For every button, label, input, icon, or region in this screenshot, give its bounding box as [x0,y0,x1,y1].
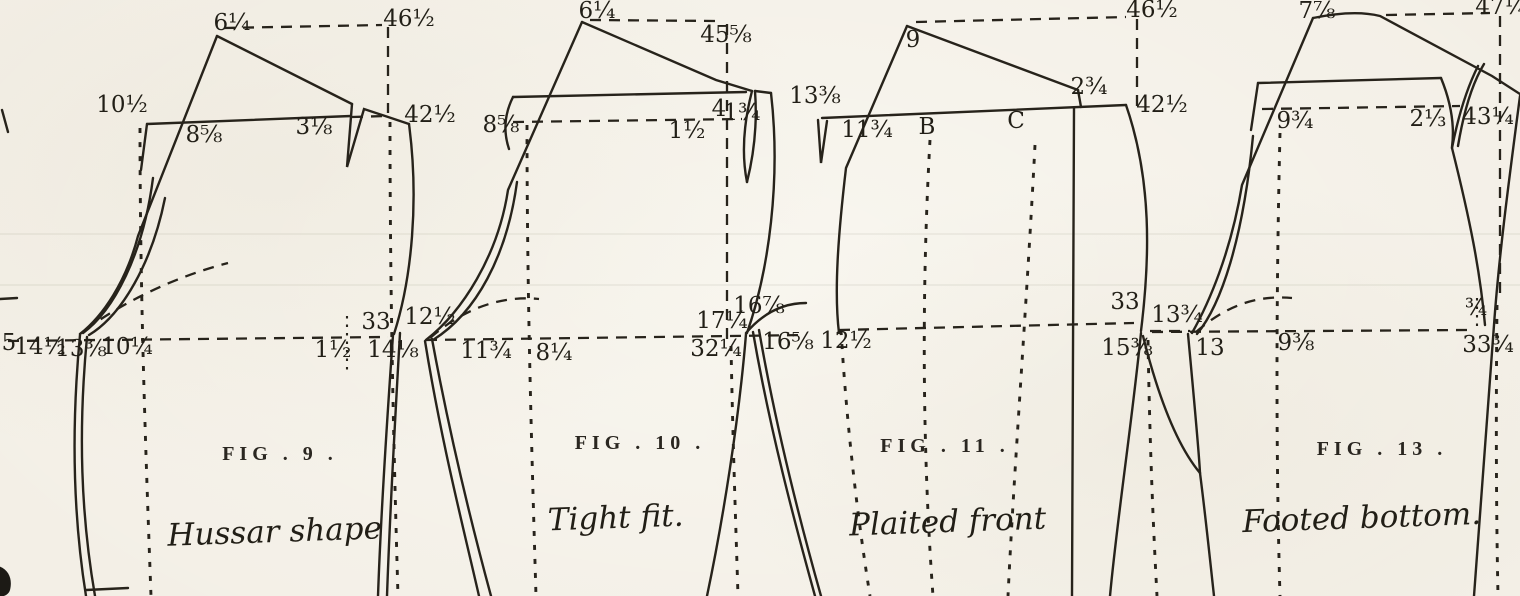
fig11-pleat-line [1072,108,1074,596]
measurement-label: 7⅞ [1299,0,1336,24]
edge-mark [2,110,8,132]
fig9-front-rise [80,36,217,334]
edge-mark [0,298,17,299]
fig11-top-seam [907,26,1078,90]
fig10-construction-dashes [426,20,806,340]
fig13-caption: Footed bottom. [1241,496,1482,540]
measurement-label: 10½ [96,92,148,118]
fig9-top-seam [217,36,352,104]
measurement-label: 43¼ [1462,104,1514,130]
measurement-label: 8¼ [536,340,573,366]
fig10-band-corner [755,91,771,93]
measurement-label: 2⅓ [1410,106,1447,132]
measurement-label: 13¾ [1151,302,1203,328]
point-letter-b: B [919,114,936,140]
measurement-label: 12½ [404,304,456,330]
measurement-label: 6¼ [579,0,616,24]
fig9-waist-dart [347,104,409,167]
measurement-label: 33¾ [1462,332,1514,358]
fig13-front-rise [1192,18,1313,333]
measurement-label: 46½ [383,6,435,32]
fig10-caption: Tight fit. [547,498,684,539]
measurement-label: 11¾ [460,338,512,364]
fig9-construction-dashes [8,25,388,341]
fig11-title: FIG . 11 . [880,435,1009,457]
measurement-label: 1½ [315,337,352,363]
figure-10: 6¼45⅝8⅝1½41¾12½11¾8¼17¼16⅞32¼16⅝ FIG . 1… [404,0,821,596]
fig11-front-rise [837,26,907,333]
measurement-label: 46½ [1126,0,1178,23]
fig13-top-seam [1313,13,1520,94]
measurement-label: 16⅞ [733,293,785,319]
fig10-leg-line [425,341,479,596]
measurement-label: ¾ [1465,295,1487,321]
measurement-label: 13 [1195,335,1224,361]
measurement-label: 42½ [1136,92,1188,118]
measurement-label: 8⅝ [483,112,520,138]
measurement-label: 32¼ [690,336,742,362]
fig10-title: FIG . 10 . [575,432,706,454]
fig9-caption: Hussar shape [166,510,383,554]
measurement-label: 9 [906,27,921,53]
fig9-waist-dash [352,116,386,117]
fig11-band-dart [818,120,827,163]
fig9-labels: 6¼46½10½8⅝3⅛42½514½13⅜10¼1½3314⅛ [2,6,456,363]
fig11-knee-dash [839,323,1134,330]
figure-13: 13¾137⅞47¼9¾2⅓43¼9⅜¾33¾ FIG . 13 . Foote… [1143,0,1520,596]
pattern-sheet: 6¼46½10½8⅝3⅛42½514½13⅜10¼1½3314⅛ FIG . 9… [0,0,1520,596]
measurement-label: 45⅝ [700,22,752,48]
fig10-crease [731,346,738,596]
measurement-label: 1½ [669,118,706,144]
fig11-crease [841,330,870,596]
measurement-label: 12½ [820,328,872,354]
ink-blot [0,565,11,596]
measurement-label: 9⅜ [1278,330,1315,356]
fig9-leg-line [378,335,393,596]
fig11-labels: 946½13⅜11¾BC2¾42½12½3315⅜ [789,0,1188,361]
fig9-leg-line [82,337,95,596]
measurement-label: 6¼ [214,10,251,36]
fig10-leg-line [707,334,746,596]
trouser-drafting-diagram: 6¼46½10½8⅝3⅛42½514½13⅜10¼1½3314⅛ FIG . 9… [0,0,1520,596]
fig10-leg-line [759,330,821,596]
fig13-title: FIG . 13 . [1317,438,1448,460]
measurement-label: 33 [361,309,390,335]
measurement-label: 8⅝ [186,122,223,148]
measurement-label: 47¼ [1475,0,1520,20]
fig9-band-end [141,124,147,170]
fig11-top-dash [916,17,1126,22]
fig13-leg-line [1200,473,1214,596]
measurement-label: 10¼ [101,334,153,360]
fig11-leg-line [1110,333,1141,596]
measurement-label: 33 [1110,289,1139,315]
measurement-label: 3⅛ [296,114,333,140]
fig9-side-seam [394,124,414,334]
measurement-label: 16⅝ [762,329,814,355]
measurement-label: 9¾ [1277,108,1314,134]
measurement-label: 14⅛ [367,337,419,363]
point-letter-c: C [1007,108,1025,134]
fig10-waist-dash [513,119,742,122]
measurement-label: 13⅜ [55,336,107,362]
measurement-label: 13⅜ [789,83,841,109]
fig13-construction-dashes [1152,13,1500,332]
fig13-band-end [1251,83,1258,130]
measurement-label: 11¾ [841,117,893,143]
fig10-front-rise [426,22,582,340]
fig10-leg-line [432,339,491,596]
fig10-leg-line [753,332,815,596]
measurement-label: 1¾ [724,100,761,126]
figure-9: 6¼46½10½8⅝3⅛42½514½13⅜10¼1½3314⅛ FIG . 9… [2,6,456,596]
figure-11: 946½13⅜11¾BC2¾42½12½3315⅜ FIG . 11 . Pla… [789,0,1190,596]
fig9-title: FIG . 9 . [222,443,338,465]
fig11-caption: Plaited front [848,501,1048,544]
edge-mark [86,588,128,590]
measurement-label: 42½ [404,102,456,128]
measurement-label: 2¾ [1071,74,1108,100]
